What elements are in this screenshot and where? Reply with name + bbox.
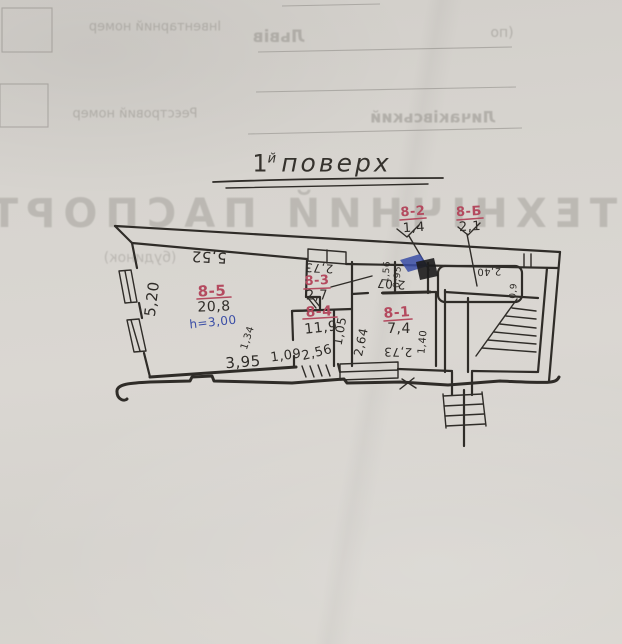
ghost-form-lines (0, 4, 522, 134)
scanned-tech-passport-page: Інвентарний номер Львів (по Реєстровий н… (0, 0, 622, 644)
measurement: 1,40 (416, 329, 429, 354)
measurement: 2,73 (304, 260, 333, 275)
room-label: 8-Б (456, 204, 483, 220)
pen-scribble-marks (400, 254, 438, 280)
room-area: 7,4 (387, 321, 411, 337)
measurement: 2,40 (477, 265, 502, 277)
room-area: 2,7 (306, 289, 328, 304)
measurement: 1,56 (381, 261, 393, 284)
room-area: 1,4 (402, 220, 425, 237)
room-area: 2,1 (459, 219, 482, 235)
measurement: 2,73 (384, 345, 413, 359)
title-underline (213, 178, 443, 188)
measurement: 0,95 (392, 266, 404, 289)
exterior-steps (443, 390, 486, 446)
measurement: 3,95 (225, 352, 262, 372)
room-label: 8-5 (197, 282, 226, 301)
room-label: 8-1 (383, 304, 411, 322)
room-label: 8-2 (400, 204, 426, 221)
measurement: 0,9 (508, 283, 519, 300)
measurement: 5,52 (191, 247, 227, 267)
